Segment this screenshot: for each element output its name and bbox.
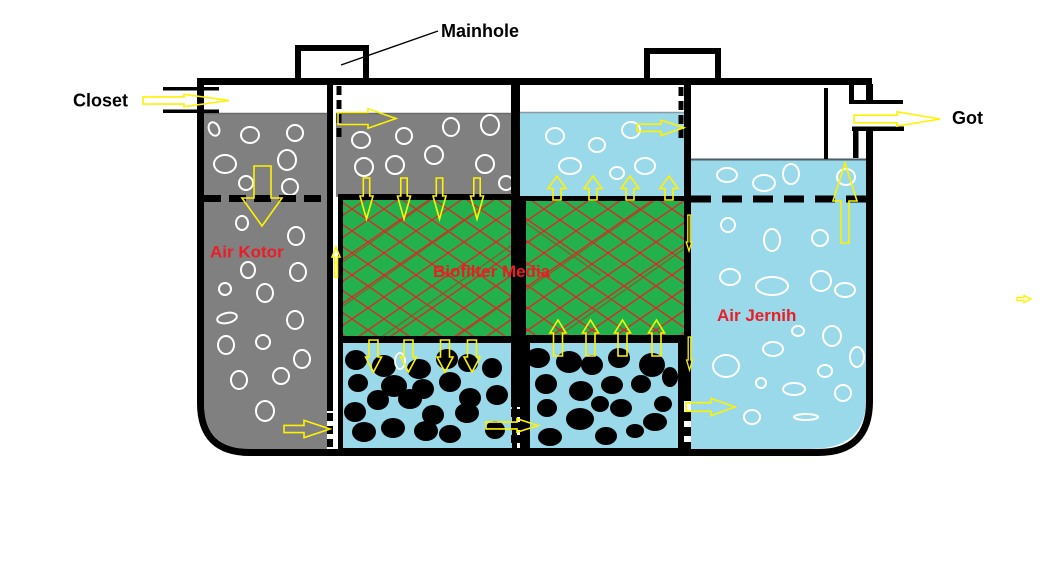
svg-text:Closet: Closet <box>73 91 128 111</box>
svg-text:Got: Got <box>952 108 983 128</box>
svg-text:Air Kotor: Air Kotor <box>210 243 284 262</box>
svg-text:Biofilter Media: Biofilter Media <box>433 262 551 281</box>
svg-text:Mainhole: Mainhole <box>441 21 519 41</box>
svg-text:Air Jernih: Air Jernih <box>717 306 796 325</box>
